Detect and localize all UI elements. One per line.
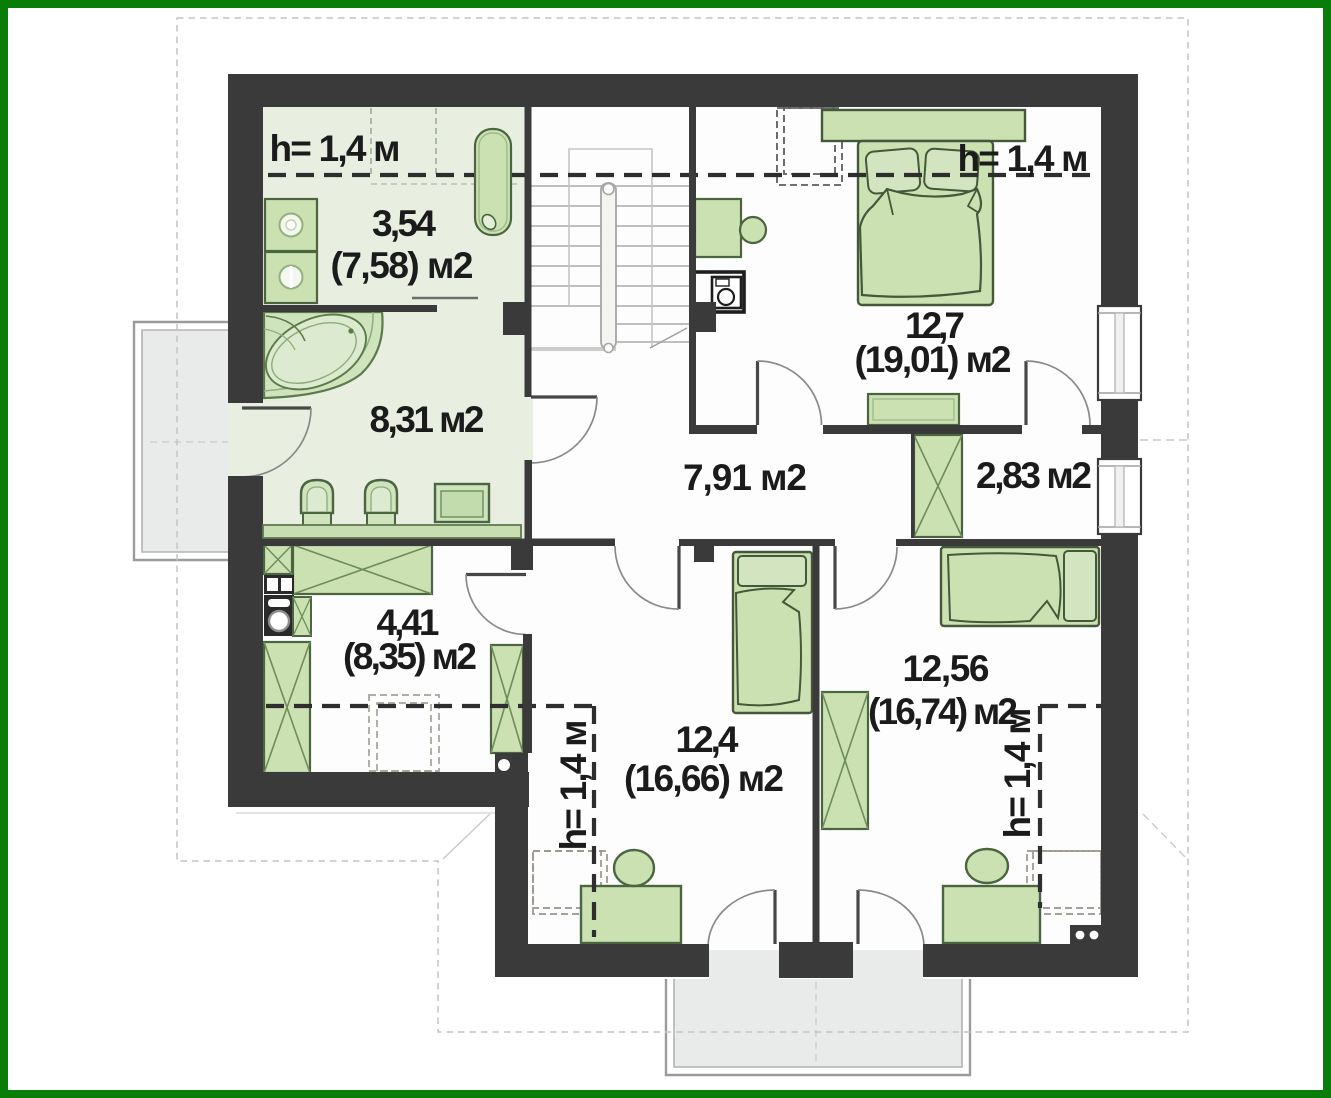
svg-text:3,54: 3,54 — [372, 203, 436, 244]
svg-text:h= 1,4 м: h= 1,4 м — [997, 708, 1038, 839]
svg-text:(19,01) м2: (19,01) м2 — [855, 339, 1012, 380]
svg-text:12,4: 12,4 — [676, 719, 739, 760]
svg-text:7,91 м2: 7,91 м2 — [683, 457, 807, 498]
svg-text:2,83 м2: 2,83 м2 — [976, 455, 1092, 496]
svg-text:(8,35) м2: (8,35) м2 — [343, 636, 477, 677]
svg-text:12,56: 12,56 — [903, 648, 990, 689]
svg-text:(16,74) м2: (16,74) м2 — [868, 691, 1018, 732]
svg-text:h= 1,4 м: h= 1,4 м — [553, 720, 594, 851]
svg-text:(16,66) м2: (16,66) м2 — [624, 758, 784, 799]
svg-text:h= 1,4 м: h= 1,4 м — [958, 138, 1089, 179]
svg-text:h= 1,4 м: h= 1,4 м — [270, 128, 401, 169]
svg-text:(7,58) м2: (7,58) м2 — [331, 245, 474, 286]
svg-text:8,31 м2: 8,31 м2 — [370, 399, 485, 440]
